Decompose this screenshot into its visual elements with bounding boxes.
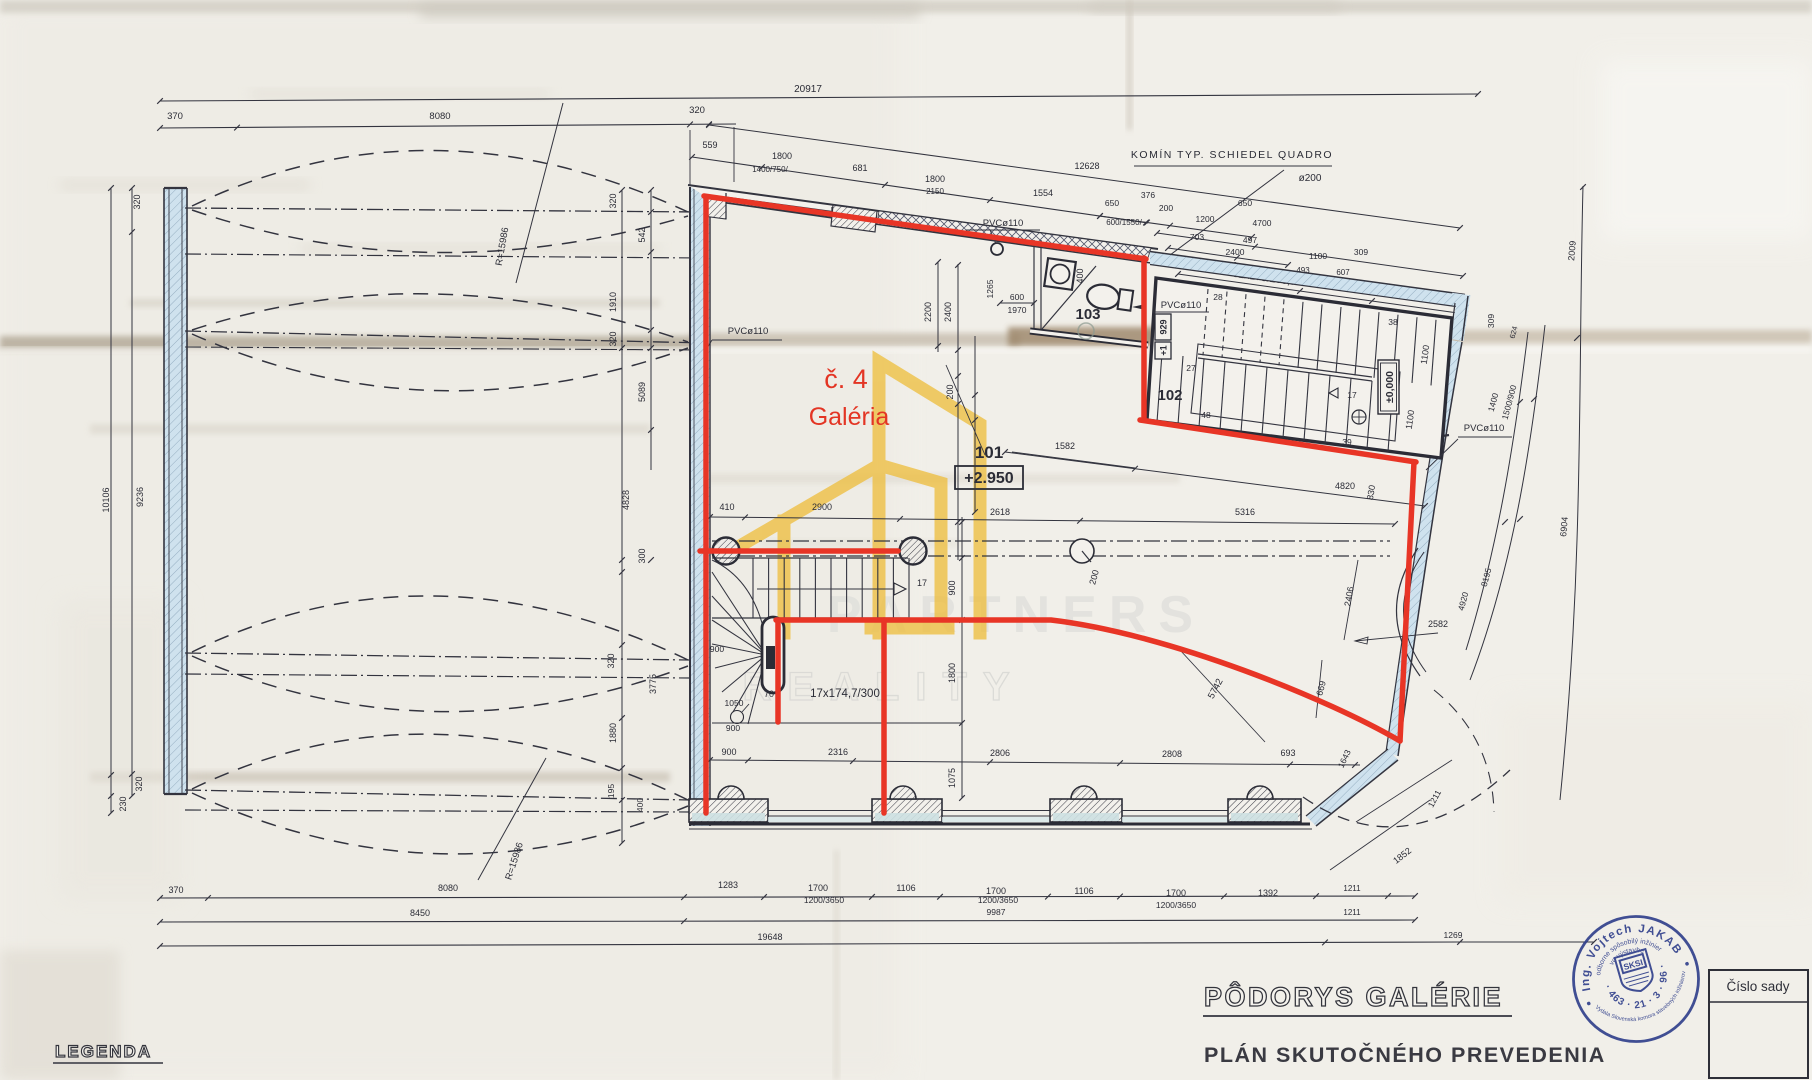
svg-text:400: 400 bbox=[1075, 268, 1085, 283]
svg-text:+1: +1 bbox=[1159, 345, 1169, 355]
svg-text:101: 101 bbox=[975, 443, 1003, 462]
svg-text:200: 200 bbox=[1159, 203, 1173, 213]
svg-text:39: 39 bbox=[1342, 437, 1352, 447]
svg-text:27: 27 bbox=[1186, 363, 1196, 373]
svg-text:320: 320 bbox=[606, 653, 616, 668]
svg-text:320: 320 bbox=[608, 331, 618, 346]
svg-text:309: 309 bbox=[1354, 247, 1368, 257]
svg-text:1910: 1910 bbox=[608, 292, 618, 312]
svg-text:410: 410 bbox=[719, 502, 734, 512]
svg-text:ø200: ø200 bbox=[1299, 173, 1322, 184]
svg-text:8080: 8080 bbox=[438, 883, 458, 893]
svg-text:693: 693 bbox=[1280, 748, 1295, 758]
svg-text:542: 542 bbox=[637, 227, 647, 242]
svg-text:PÔDORYS GALÉRIE: PÔDORYS GALÉRIE bbox=[1204, 981, 1503, 1012]
svg-text:309: 309 bbox=[1486, 314, 1496, 328]
svg-text:370: 370 bbox=[168, 885, 183, 895]
svg-text:1100: 1100 bbox=[1309, 251, 1328, 261]
svg-text:9236: 9236 bbox=[135, 487, 145, 507]
svg-text:2150: 2150 bbox=[926, 187, 944, 196]
svg-text:2582: 2582 bbox=[1428, 619, 1448, 629]
svg-text:2618: 2618 bbox=[990, 507, 1010, 517]
svg-text:9987: 9987 bbox=[987, 907, 1006, 917]
svg-text:1800: 1800 bbox=[925, 174, 945, 184]
svg-text:2200: 2200 bbox=[923, 302, 933, 322]
svg-text:KOMÍN TYP. SCHIEDEL QUADRO: KOMÍN TYP. SCHIEDEL QUADRO bbox=[1131, 148, 1333, 161]
svg-text:38: 38 bbox=[1388, 317, 1398, 327]
svg-text:1970: 1970 bbox=[1008, 305, 1027, 315]
svg-text:370: 370 bbox=[167, 111, 183, 122]
svg-text:č. 4: č. 4 bbox=[824, 364, 868, 394]
svg-text:1211: 1211 bbox=[1343, 884, 1361, 893]
svg-text:900: 900 bbox=[710, 644, 724, 654]
svg-text:300: 300 bbox=[637, 548, 647, 563]
svg-text:5316: 5316 bbox=[1235, 507, 1255, 517]
svg-text:3775: 3775 bbox=[648, 674, 658, 694]
svg-text:320: 320 bbox=[608, 193, 618, 208]
svg-text:681: 681 bbox=[852, 163, 867, 173]
svg-text:559: 559 bbox=[702, 140, 717, 150]
svg-text:2808: 2808 bbox=[1162, 749, 1182, 759]
svg-text:2316: 2316 bbox=[828, 747, 848, 757]
svg-text:2009: 2009 bbox=[1566, 240, 1578, 261]
svg-text:1283: 1283 bbox=[718, 880, 738, 890]
svg-text:929: 929 bbox=[1159, 319, 1169, 334]
svg-text:PVCø110: PVCø110 bbox=[983, 218, 1023, 229]
svg-text:20917: 20917 bbox=[794, 84, 822, 95]
svg-text:230: 230 bbox=[118, 796, 128, 811]
svg-text:1211: 1211 bbox=[1343, 908, 1361, 917]
svg-text:600/1550/: 600/1550/ bbox=[1106, 218, 1142, 227]
svg-text:PVCø110: PVCø110 bbox=[1464, 423, 1504, 434]
svg-text:2806: 2806 bbox=[990, 748, 1010, 758]
svg-text:8080: 8080 bbox=[429, 111, 450, 122]
svg-text:102: 102 bbox=[1157, 387, 1182, 404]
svg-text:900: 900 bbox=[721, 747, 736, 757]
svg-text:195: 195 bbox=[606, 784, 616, 798]
svg-text:376: 376 bbox=[1141, 190, 1155, 200]
svg-text:320: 320 bbox=[132, 194, 142, 209]
svg-text:19648: 19648 bbox=[757, 932, 782, 942]
svg-text:900: 900 bbox=[947, 580, 957, 595]
svg-text:1075: 1075 bbox=[947, 768, 957, 788]
svg-text:1800: 1800 bbox=[947, 663, 957, 683]
svg-text:2900: 2900 bbox=[812, 502, 832, 512]
svg-text:5089: 5089 bbox=[637, 382, 647, 402]
svg-text:1265: 1265 bbox=[985, 279, 995, 298]
svg-text:650: 650 bbox=[1105, 198, 1119, 208]
svg-text:1200/3650: 1200/3650 bbox=[978, 895, 1018, 905]
svg-text:PVCø110: PVCø110 bbox=[1161, 300, 1201, 311]
svg-text:17: 17 bbox=[1347, 390, 1357, 400]
svg-text:1700: 1700 bbox=[808, 883, 828, 893]
svg-text:1106: 1106 bbox=[1074, 886, 1093, 896]
svg-text:8450: 8450 bbox=[410, 908, 430, 918]
svg-text:70: 70 bbox=[764, 689, 774, 699]
svg-text:320: 320 bbox=[134, 776, 144, 791]
svg-text:Galéria: Galéria bbox=[809, 403, 890, 431]
svg-text:1700: 1700 bbox=[1166, 888, 1186, 898]
svg-text:1800: 1800 bbox=[772, 151, 792, 161]
svg-text:607: 607 bbox=[1336, 268, 1350, 277]
svg-text:200: 200 bbox=[945, 384, 955, 399]
svg-text:1050: 1050 bbox=[725, 698, 744, 708]
svg-text:LEGENDA: LEGENDA bbox=[55, 1042, 152, 1061]
svg-text:10106: 10106 bbox=[101, 487, 111, 512]
svg-text:Číslo sady: Číslo sady bbox=[1726, 979, 1789, 994]
svg-text:2400: 2400 bbox=[1226, 247, 1245, 257]
svg-text:±0,000: ±0,000 bbox=[1384, 371, 1396, 403]
svg-text:4828: 4828 bbox=[621, 490, 631, 510]
svg-text:320: 320 bbox=[689, 105, 705, 116]
svg-text:600: 600 bbox=[1010, 292, 1024, 302]
svg-text:4700: 4700 bbox=[1253, 218, 1272, 228]
svg-text:1200/3650: 1200/3650 bbox=[1156, 900, 1196, 910]
svg-text:+2.950: +2.950 bbox=[964, 470, 1013, 487]
svg-text:48: 48 bbox=[1201, 410, 1211, 420]
svg-text:1200: 1200 bbox=[1196, 214, 1215, 224]
svg-text:6904: 6904 bbox=[1558, 516, 1570, 537]
svg-text:28: 28 bbox=[1213, 292, 1223, 302]
svg-text:1392: 1392 bbox=[1258, 888, 1278, 898]
svg-text:400: 400 bbox=[635, 798, 645, 812]
svg-text:1582: 1582 bbox=[1055, 441, 1075, 451]
svg-text:12628: 12628 bbox=[1074, 161, 1099, 171]
svg-text:PLÁN SKUTOČNÉHO PREVEDENIA: PLÁN SKUTOČNÉHO PREVEDENIA bbox=[1204, 1042, 1606, 1067]
svg-text:1554: 1554 bbox=[1033, 188, 1053, 198]
svg-text:2400: 2400 bbox=[943, 302, 953, 322]
svg-text:1106: 1106 bbox=[896, 883, 915, 893]
svg-text:17: 17 bbox=[917, 578, 927, 588]
svg-text:17x174,7/300: 17x174,7/300 bbox=[810, 688, 880, 700]
svg-text:1269: 1269 bbox=[1444, 930, 1463, 940]
svg-text:703: 703 bbox=[1190, 232, 1204, 242]
svg-text:1880: 1880 bbox=[608, 723, 618, 743]
svg-text:103: 103 bbox=[1075, 306, 1100, 323]
svg-text:497: 497 bbox=[1243, 235, 1257, 245]
svg-text:PVCø110: PVCø110 bbox=[728, 326, 768, 337]
svg-text:1400/750/: 1400/750/ bbox=[752, 165, 788, 174]
svg-text:1200/3650: 1200/3650 bbox=[804, 895, 844, 905]
svg-text:4820: 4820 bbox=[1335, 481, 1355, 491]
svg-text:900: 900 bbox=[726, 723, 740, 733]
